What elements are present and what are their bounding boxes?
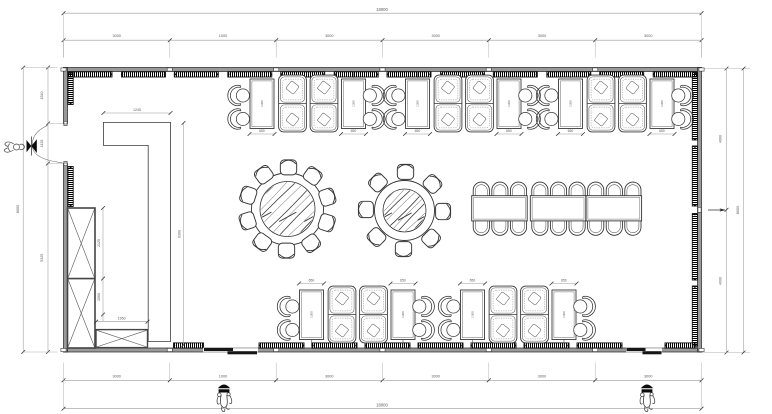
svg-text:8000: 8000: [16, 205, 20, 213]
svg-text:3000: 3000: [538, 374, 546, 378]
svg-text:650: 650: [309, 279, 315, 283]
svg-text:3000: 3000: [112, 374, 120, 378]
svg-text:1060: 1060: [97, 293, 101, 301]
svg-text:1540: 1540: [40, 92, 44, 100]
svg-text:3000: 3000: [112, 34, 120, 38]
svg-text:3000: 3000: [325, 374, 333, 378]
svg-text:1135: 1135: [40, 140, 44, 148]
svg-text:3000: 3000: [644, 34, 652, 38]
svg-text:1000: 1000: [219, 34, 227, 38]
svg-text:650: 650: [415, 129, 421, 133]
svg-text:650: 650: [561, 279, 567, 283]
svg-text:3000: 3000: [431, 374, 439, 378]
svg-text:8000: 8000: [736, 206, 740, 214]
svg-text:6300: 6300: [177, 230, 181, 238]
svg-text:650: 650: [259, 129, 265, 133]
svg-text:650: 650: [470, 279, 476, 283]
svg-text:5325: 5325: [40, 254, 44, 262]
svg-text:650: 650: [659, 129, 665, 133]
svg-text:3000: 3000: [325, 34, 333, 38]
svg-text:3000: 3000: [644, 374, 652, 378]
svg-text:650: 650: [400, 279, 406, 283]
svg-text:650: 650: [568, 129, 574, 133]
svg-text:4000: 4000: [719, 135, 723, 143]
svg-text:650: 650: [506, 129, 512, 133]
svg-text:1000: 1000: [219, 374, 227, 378]
svg-text:650: 650: [351, 129, 357, 133]
svg-text:1245: 1245: [133, 108, 141, 112]
svg-text:18000: 18000: [376, 7, 388, 12]
svg-text:3000: 3000: [538, 34, 546, 38]
svg-text:4000: 4000: [719, 277, 723, 285]
svg-text:3000: 3000: [431, 34, 439, 38]
svg-text:18000: 18000: [376, 402, 388, 407]
svg-text:2125: 2125: [97, 239, 101, 247]
svg-text:1950: 1950: [118, 317, 126, 321]
